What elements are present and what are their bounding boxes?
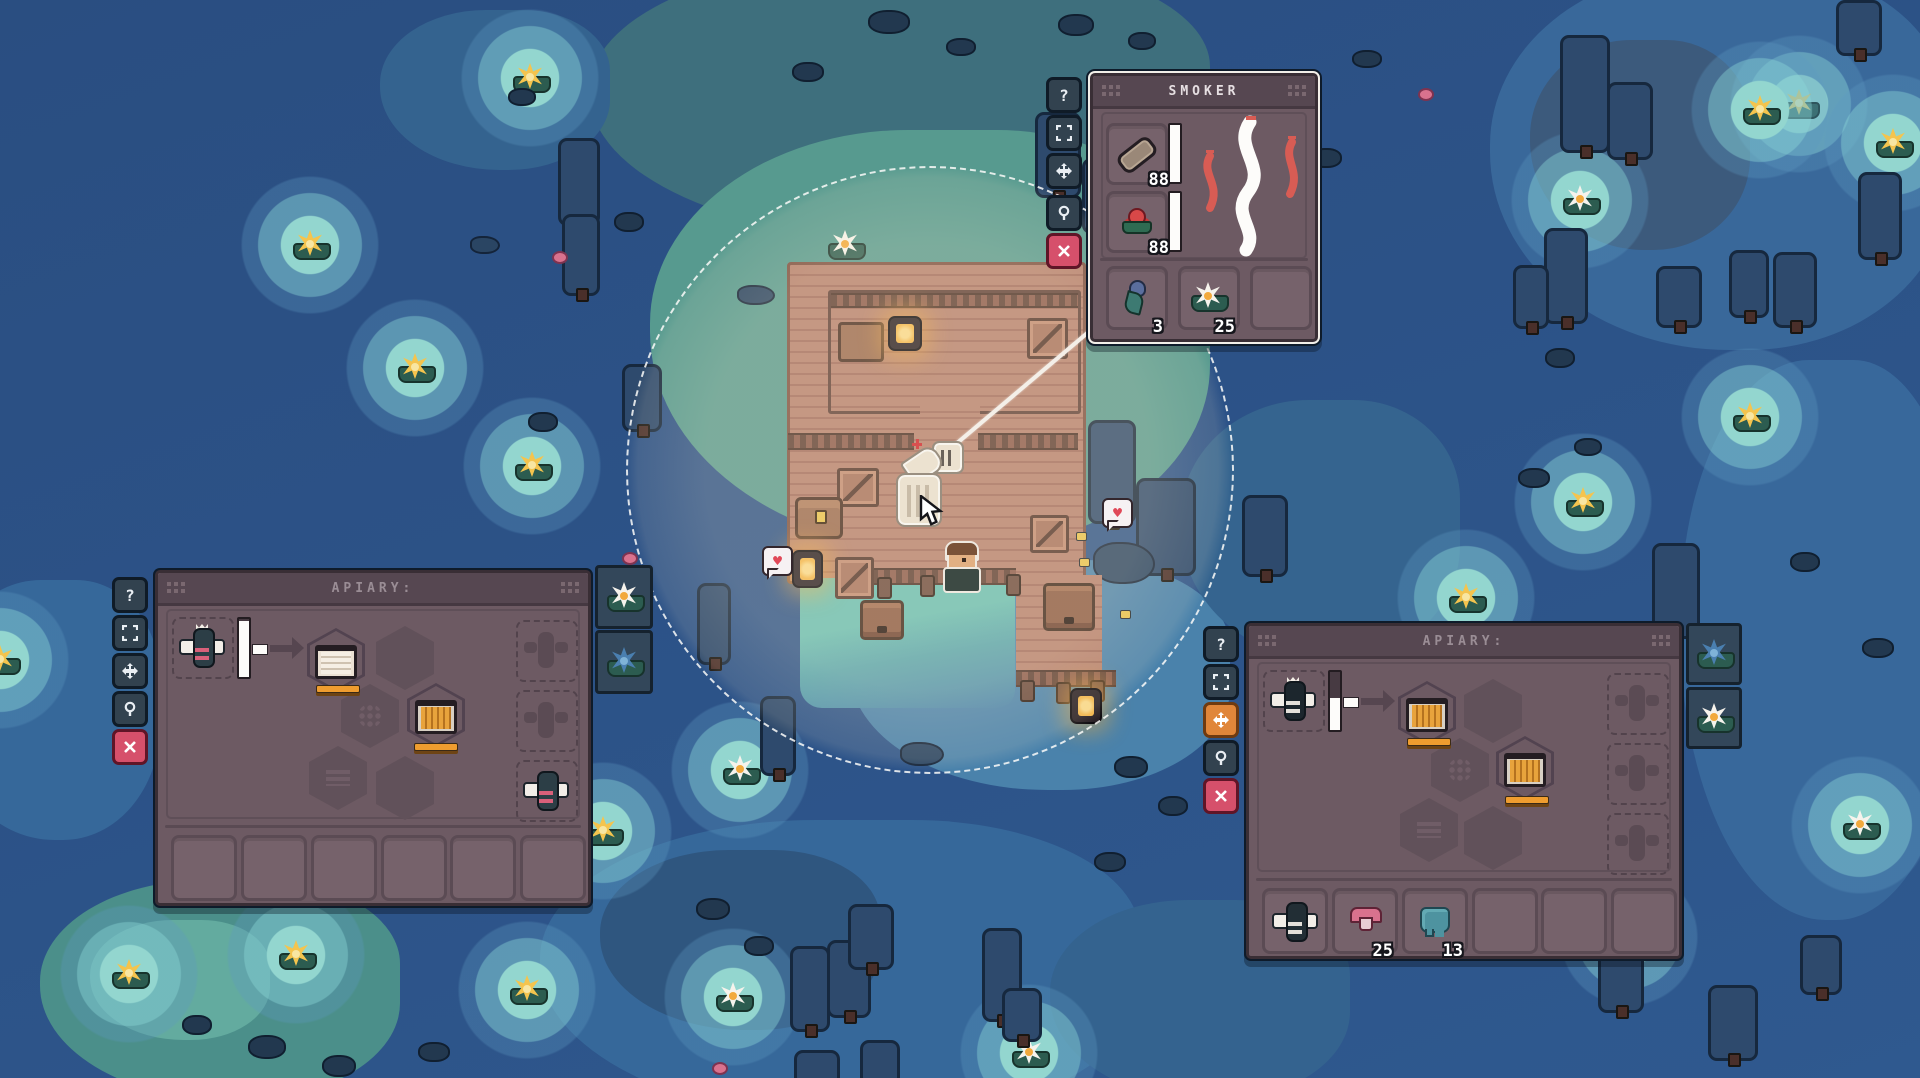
apiary-titlebar[interactable]: APIARY: (158, 573, 588, 606)
tree (1513, 265, 1549, 329)
honey-frame-icon (415, 700, 457, 734)
bush (508, 88, 536, 106)
tree (794, 1050, 840, 1078)
honey-frame-icon (1504, 753, 1546, 787)
titlebar-dots (167, 582, 171, 586)
bee-slot[interactable] (1607, 743, 1669, 805)
close-icon (123, 740, 137, 754)
storage-slot[interactable]: 13 (1402, 888, 1468, 954)
queen-bee-icon (1270, 679, 1316, 721)
queen-bee-icon (179, 626, 225, 668)
inspect-button[interactable] (112, 691, 148, 727)
red-flower-item-icon (1120, 208, 1150, 234)
bush (1862, 638, 1894, 658)
apiary-panel-left[interactable]: APIARY: (155, 570, 591, 906)
list-hex (1400, 798, 1458, 862)
water-lily-flower (111, 959, 147, 989)
bush (946, 38, 976, 56)
heart-bubble: ♥ (1102, 498, 1133, 528)
tree (1242, 495, 1288, 577)
bush (418, 1042, 450, 1062)
output-slot-empty[interactable] (1250, 266, 1312, 330)
apiary-panel-right[interactable]: APIARY: (1246, 623, 1682, 959)
frame-progress-underline (1505, 796, 1549, 804)
honeycomb-icon (1448, 758, 1472, 782)
blue-flower-item-icon (1123, 280, 1149, 314)
storage-slot[interactable] (171, 835, 237, 901)
bush (528, 412, 558, 432)
output-slot[interactable]: 3 (1106, 266, 1168, 330)
water-lily-flower (1875, 128, 1911, 158)
list-icon (1417, 822, 1441, 838)
game-screen: ♥ ♥ (0, 0, 1920, 1078)
queen-slot[interactable] (172, 617, 234, 679)
arrow-tick (1343, 697, 1359, 708)
bee-slot[interactable] (1607, 813, 1669, 875)
white-water-lily-icon (606, 582, 642, 612)
titlebar-dots (1652, 635, 1656, 639)
titlebar-dots (1258, 635, 1262, 639)
item-count: 88 (1149, 170, 1169, 190)
bush (1545, 348, 1575, 368)
tree (1836, 0, 1882, 56)
bush (1158, 796, 1188, 816)
sparkle-icon (912, 439, 922, 449)
tree (1544, 228, 1588, 324)
storage-slot[interactable] (1472, 888, 1538, 954)
flower-tile-blue-lily[interactable] (1686, 623, 1742, 685)
bush (868, 10, 910, 34)
item-count: 88 (1149, 238, 1169, 258)
resize-icon (1213, 674, 1229, 690)
blue-water-lily-icon (1696, 639, 1732, 669)
ghost-bee-icon (524, 630, 568, 670)
close-button[interactable] (112, 729, 148, 765)
bush (614, 212, 644, 232)
list-hex (309, 746, 367, 810)
resize-button[interactable] (112, 615, 148, 651)
storage-slot[interactable] (450, 835, 516, 901)
inspect-icon (122, 701, 138, 717)
move-button[interactable] (1046, 153, 1082, 189)
flower-tile-blue-lily[interactable] (595, 630, 653, 694)
panel-divider (165, 825, 581, 828)
storage-slot[interactable] (381, 835, 447, 901)
bee-slot[interactable] (1607, 673, 1669, 735)
player-character[interactable] (938, 541, 984, 595)
inspect-button[interactable] (1046, 195, 1082, 231)
item-count: 3 (1153, 317, 1163, 337)
fuel-progress-bar (1168, 123, 1182, 184)
queen-slot[interactable] (1263, 670, 1325, 732)
worker-bee-icon (523, 769, 569, 811)
flower-slot[interactable]: 88 (1106, 191, 1168, 253)
frame-hex-slot[interactable] (1496, 736, 1554, 800)
empty-hex (1464, 679, 1522, 743)
bee-slot[interactable] (516, 690, 578, 752)
arrow-head-icon (1383, 690, 1395, 712)
close-button[interactable] (1203, 778, 1239, 814)
resize-button[interactable] (1046, 115, 1082, 151)
close-icon (1214, 789, 1228, 803)
heart-icon: ♥ (1113, 504, 1122, 522)
water-lily-flower (715, 982, 751, 1012)
white-water-lily-icon (1696, 703, 1732, 733)
arrow-tick (252, 644, 268, 655)
resize-icon (1056, 125, 1072, 141)
bush (744, 936, 774, 956)
bush (696, 898, 730, 920)
mouse-cursor-icon (918, 495, 946, 527)
panel-divider (1256, 878, 1672, 881)
rock (470, 236, 500, 254)
titlebar-dots (1288, 85, 1292, 89)
queen-progress-bar (1328, 670, 1342, 732)
frame-hex-slot[interactable] (407, 683, 465, 747)
move-icon (1056, 163, 1072, 179)
honeycomb-icon (358, 704, 382, 728)
storage-slot[interactable] (520, 835, 586, 901)
help-icon: ? (1059, 86, 1069, 105)
blue-water-lily-icon (606, 647, 642, 677)
water-lily-flower (509, 975, 545, 1005)
tree (1002, 988, 1042, 1042)
tree (860, 1040, 900, 1078)
frame-progress-underline (1407, 738, 1451, 746)
panel-title: SMOKER (1169, 84, 1240, 99)
help-icon: ? (1216, 635, 1226, 654)
close-button[interactable] (1046, 233, 1082, 269)
bush (322, 1055, 356, 1077)
heart-bubble: ♥ (762, 546, 793, 576)
bee-slot[interactable] (516, 620, 578, 682)
tree (848, 904, 894, 970)
bush (1790, 552, 1820, 572)
list-icon (326, 770, 350, 786)
water-lily-item-icon (1190, 282, 1226, 312)
apiary-titlebar[interactable]: APIARY: (1249, 626, 1679, 659)
arrow-shaft (1361, 698, 1383, 705)
bush (1058, 14, 1094, 36)
storage-slot[interactable] (311, 835, 377, 901)
item-count: 13 (1443, 941, 1463, 961)
tree (1607, 82, 1653, 160)
tree (790, 946, 830, 1032)
water-lily-flower (1565, 487, 1601, 517)
titlebar-dots (561, 582, 565, 586)
flower-tile-white-lily[interactable] (1686, 687, 1742, 749)
panel-title: APIARY: (1423, 634, 1506, 649)
bush (1128, 32, 1156, 50)
tree (558, 138, 600, 226)
water-lily-flower (278, 940, 314, 970)
bee-slot[interactable] (516, 760, 578, 822)
pink-flower (1418, 88, 1434, 101)
output-slot[interactable]: 25 (1178, 266, 1240, 330)
comb-hex (341, 684, 399, 748)
ghost-bee-icon (1615, 683, 1659, 723)
bush (1518, 468, 1550, 488)
arrow-head-icon (292, 637, 304, 659)
flower-tile-white-lily[interactable] (595, 565, 653, 629)
item-count: 25 (1215, 317, 1235, 337)
dragged-smoker-item[interactable] (894, 437, 974, 532)
frame-progress-underline (414, 743, 458, 751)
water-lily-flower (397, 353, 433, 383)
inspect-button[interactable] (1203, 740, 1239, 776)
fuel-slot[interactable]: 88 (1106, 123, 1168, 185)
water-lily-flower (292, 230, 328, 260)
close-icon (1057, 244, 1071, 258)
flower-progress-bar (1168, 191, 1182, 252)
move-button-active[interactable] (1203, 702, 1239, 738)
smoke-animation (1188, 114, 1308, 259)
help-button[interactable]: ? (112, 577, 148, 613)
heart-icon: ♥ (773, 552, 782, 570)
water-lily-flower (1732, 402, 1768, 432)
drone-bee-icon (1272, 900, 1318, 942)
bush (1352, 50, 1382, 68)
storage-slot[interactable] (1611, 888, 1677, 954)
frame-hex-slot[interactable] (1398, 681, 1456, 745)
ghost-bee-icon (1615, 823, 1659, 863)
resize-button[interactable] (1203, 664, 1239, 700)
inspect-icon (1213, 750, 1229, 766)
empty-hex (376, 756, 434, 820)
arrow-shaft (270, 645, 292, 652)
frame-progress-underline (316, 685, 360, 693)
move-icon (122, 663, 138, 679)
frame-hex-slot[interactable] (307, 628, 365, 692)
storage-slot[interactable] (241, 835, 307, 901)
uncapped-frame-icon (315, 645, 357, 679)
bush (792, 62, 824, 82)
bush (1094, 852, 1126, 872)
help-button[interactable]: ? (1203, 626, 1239, 662)
tree (1800, 935, 1842, 995)
honey-frame-icon (1406, 698, 1448, 732)
water-lily-flower (1842, 810, 1878, 840)
item-count: 25 (1373, 941, 1393, 961)
tree (1773, 252, 1817, 328)
inspect-icon (1056, 205, 1072, 221)
water-lily-flower (1562, 185, 1598, 215)
smoker-titlebar[interactable]: SMOKER (1093, 76, 1315, 109)
pink-flower (552, 251, 568, 264)
bush (182, 1015, 212, 1035)
pink-flower (712, 1062, 728, 1075)
empty-hex (376, 626, 434, 690)
tree (1858, 172, 1902, 260)
storage-slot[interactable]: 25 (1332, 888, 1398, 954)
tree (1560, 35, 1610, 153)
queen-progress-bar (237, 617, 251, 679)
help-icon: ? (125, 586, 135, 605)
player-body (943, 567, 981, 593)
empty-hex (1464, 806, 1522, 870)
move-button[interactable] (112, 653, 148, 689)
move-icon (1213, 712, 1229, 728)
panel-divider (1100, 258, 1308, 261)
tree (1656, 266, 1702, 328)
bush (1574, 438, 1602, 456)
help-button[interactable]: ? (1046, 77, 1082, 113)
panel-title: APIARY: (332, 581, 415, 596)
titlebar-dots (1102, 85, 1106, 89)
comb-hex (1431, 738, 1489, 802)
water-lily-flower (1742, 95, 1778, 125)
storage-slot[interactable] (1262, 888, 1328, 954)
water-lily-flower (514, 451, 550, 481)
bush (1114, 756, 1148, 778)
teal-droplet-item-icon (1420, 907, 1450, 933)
player-eye (962, 558, 966, 562)
pink-mushroom-item-icon (1350, 907, 1378, 931)
ghost-bee-icon (524, 700, 568, 740)
resize-icon (122, 625, 138, 641)
water-lily-flower (722, 755, 758, 785)
water-lily-flower (1448, 583, 1484, 613)
tree (1708, 985, 1758, 1061)
storage-slot[interactable] (1541, 888, 1607, 954)
pink-mushroom-icon (622, 552, 638, 565)
ghost-bee-icon (1615, 753, 1659, 793)
tree (1729, 250, 1769, 318)
water-lily-flower (0, 645, 18, 675)
smoker-panel[interactable]: SMOKER 88 88 3 25 (1090, 73, 1318, 342)
bush (248, 1035, 286, 1059)
